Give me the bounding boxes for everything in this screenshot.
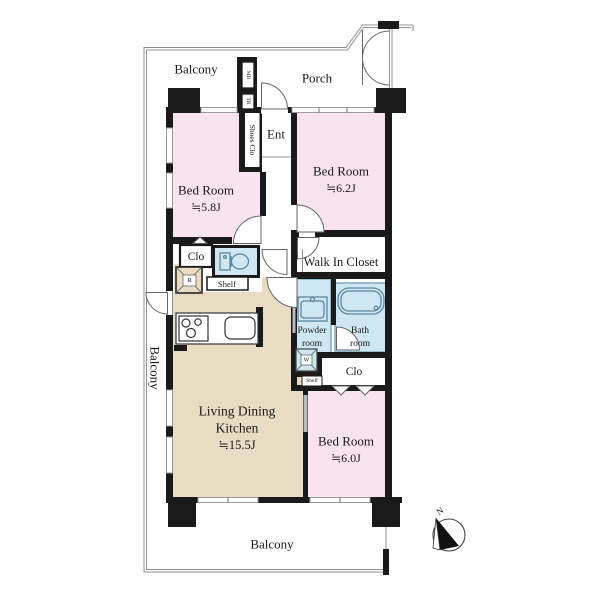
bath-room-label-1: Bath: [351, 326, 369, 336]
kitchen-sink: [225, 317, 255, 339]
powder-room-label-1: Powder: [297, 326, 327, 336]
bedroom1-name: Bed Room: [178, 183, 234, 198]
bedroom2-name: Bed Room: [313, 164, 369, 179]
balcony-service-door: [146, 293, 168, 315]
porch-top-marker: [378, 21, 399, 29]
balcony-bottom-label: Balcony: [250, 537, 294, 552]
pillar-bottom-right: [372, 501, 400, 527]
porch-double-door: [363, 30, 390, 85]
compass-north-label: N: [434, 505, 445, 517]
powder-sliding-door: [293, 307, 296, 333]
bedroom1-side-window-1: [167, 128, 173, 163]
bath-room-label-2: room: [350, 339, 371, 349]
meter-box-label: MB: [245, 71, 251, 80]
ldk-side-window-1: [167, 390, 173, 426]
entrance-door: [262, 83, 288, 109]
shelf-top-label: Shelf: [218, 279, 236, 289]
bedroom3-size: ≒6.0J: [331, 451, 361, 465]
bedroom1-top-window: [201, 108, 237, 113]
floor-plan: N Balcony Porch MB TR Ent Shoes Clo Bed …: [0, 0, 600, 600]
bedroom1-side-window-2: [167, 173, 173, 208]
ldk-size: ≒15.5J: [218, 438, 255, 452]
balcony-partition: [383, 549, 389, 575]
powder-room-label-2: room: [302, 339, 323, 349]
bedroom2-top-window: [292, 108, 374, 113]
floor-plan-drawing: N Balcony Porch MB TR Ent Shoes Clo Bed …: [0, 0, 600, 600]
pillar-bottom-left: [168, 501, 196, 527]
bedroom3-name: Bed Room: [318, 434, 374, 449]
shoes-closet-label: Shoes Clo: [248, 125, 257, 156]
closet-top-label: Clo: [188, 251, 205, 263]
closet-bottom-label: Clo: [346, 366, 363, 378]
trunk-room-label: TR: [245, 97, 251, 104]
balcony-top-label: Balcony: [174, 62, 218, 77]
compass: N: [433, 505, 465, 551]
balcony-left-label: Balcony: [148, 346, 163, 390]
shelf-bottom-label: Shelf: [306, 377, 318, 384]
ldk-label-1: Living Dining: [199, 404, 276, 419]
refrigerator-label: R: [187, 277, 192, 284]
bedroom2-size: ≒6.2J: [326, 181, 356, 195]
entrance-label: Ent: [267, 127, 285, 142]
washer-label: W: [304, 358, 310, 364]
kitchen-counter: [176, 313, 258, 344]
bedroom1-size: ≒5.8J: [191, 200, 221, 214]
porch-label: Porch: [302, 71, 333, 86]
ldk-label-2: Kitchen: [216, 421, 259, 436]
bedroom3-sliding-door: [304, 395, 308, 432]
ldk-side-window-2: [167, 437, 173, 473]
walk-in-closet-label: Walk In Closet: [304, 255, 379, 269]
